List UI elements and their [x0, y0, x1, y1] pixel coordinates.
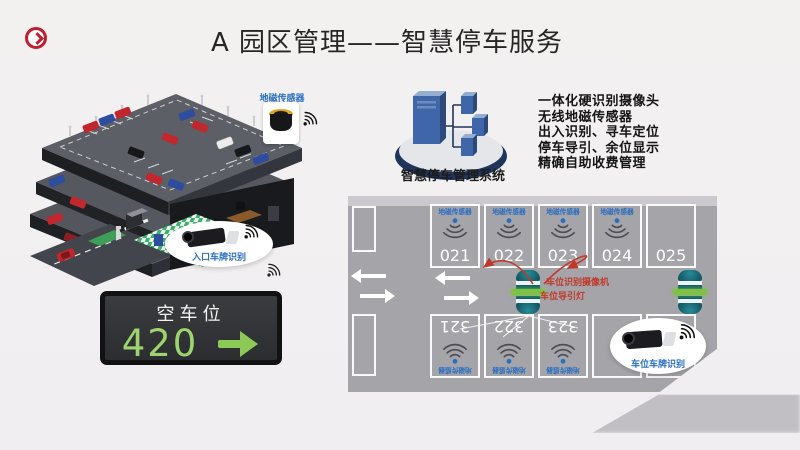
magnetic-sensor: 地磁传感器 [540, 335, 586, 375]
entrance-camera-label: 入口车牌识别 [165, 250, 273, 263]
parking-map: 地磁传感器 021 地磁传感器 022 地磁传感器 [348, 196, 717, 392]
parking-space-021: 地磁传感器 021 [430, 204, 480, 268]
magnetic-sensor: 地磁传感器 [540, 207, 586, 247]
space-camera-callout: 车位车牌识别 [610, 318, 706, 374]
space-number: 321 [432, 317, 478, 336]
page-curl-shadow [592, 393, 800, 433]
magnetic-sensor-image [263, 102, 299, 144]
guidance-camera-device [678, 270, 702, 314]
barrier-pillar [116, 226, 121, 239]
space-plate-camera-label: 车位车牌识别 [610, 357, 706, 370]
parking-space-321: 地磁传感器 321 [430, 314, 480, 378]
wifi-icon [266, 262, 282, 278]
space-number: 322 [486, 317, 532, 336]
space-number: 024 [594, 246, 640, 265]
feature-item: 一体化硬识别摄像头 [538, 94, 660, 110]
feature-item: 无线地磁传感器 [538, 110, 660, 126]
parking-space-024: 地磁传感器 024 [592, 204, 642, 268]
feature-item: 出入识别、寻车定位 [538, 125, 660, 141]
sensor-wave-icon [494, 217, 524, 243]
space-number: 025 [648, 246, 694, 265]
magnetic-sensor: 地磁传感器 [594, 207, 640, 247]
wifi-icon [243, 223, 260, 240]
feature-item: 精确自助收费管理 [538, 156, 660, 172]
sensor-wave-icon [440, 339, 470, 365]
parking-space-022: 地磁传感器 022 [484, 204, 534, 268]
lane-arrow-right-icon [444, 296, 470, 300]
side-parking-space [352, 206, 376, 252]
lane-arrow-right-icon [360, 294, 386, 298]
sensor-wave-icon [548, 339, 578, 365]
guidance-camera-device [516, 270, 540, 314]
parking-space-023: 地磁传感器 023 [538, 204, 588, 268]
feature-item: 停车导引、余位显示 [538, 141, 660, 157]
parking-space-322: 地磁传感器 322 [484, 314, 534, 378]
lane-arrow-left-icon [360, 274, 386, 278]
magnetic-sensor: 地磁传感器 [432, 207, 478, 247]
lane-arrow-left-icon [444, 276, 470, 280]
space-number: 023 [540, 246, 586, 265]
guidance-light-label: 车位导引灯 [540, 289, 585, 302]
space-camera-label: 车位识别摄像机 [546, 275, 609, 288]
wifi-icon [302, 110, 319, 127]
slide: A 园区管理——智慧停车服务 [0, 0, 800, 450]
green-arrow-icon [216, 331, 260, 357]
space-number: 323 [540, 317, 586, 336]
magnetic-sensor: 地磁传感器 [486, 207, 532, 247]
parking-space-025: 025 [646, 204, 696, 268]
parking-space-323: 地磁传感器 323 [538, 314, 588, 378]
magnetic-sensor: 地磁传感器 [432, 335, 478, 375]
sensor-wave-icon [602, 217, 632, 243]
wifi-icon [678, 322, 697, 341]
slide-title: A 园区管理——智慧停车服务 [0, 22, 800, 59]
sensor-wave-icon [548, 217, 578, 243]
vacancy-board: 空车位 420 [100, 291, 282, 365]
system-name-label: 智慧停车管理系统 [386, 165, 520, 184]
sensor-wave-icon [494, 339, 524, 365]
vacancy-count: 420 [122, 326, 199, 362]
side-parking-space [352, 314, 376, 376]
entrance-camera-callout: 入口车牌识别 [165, 221, 273, 267]
magnetic-sensor: 地磁传感器 [486, 335, 532, 375]
space-number: 021 [432, 246, 478, 265]
sensor-wave-icon [440, 217, 470, 243]
space-number: 022 [486, 246, 532, 265]
feature-list: 一体化硬识别摄像头 无线地磁传感器 出入识别、寻车定位 停车导引、余位显示 精确… [538, 94, 660, 172]
